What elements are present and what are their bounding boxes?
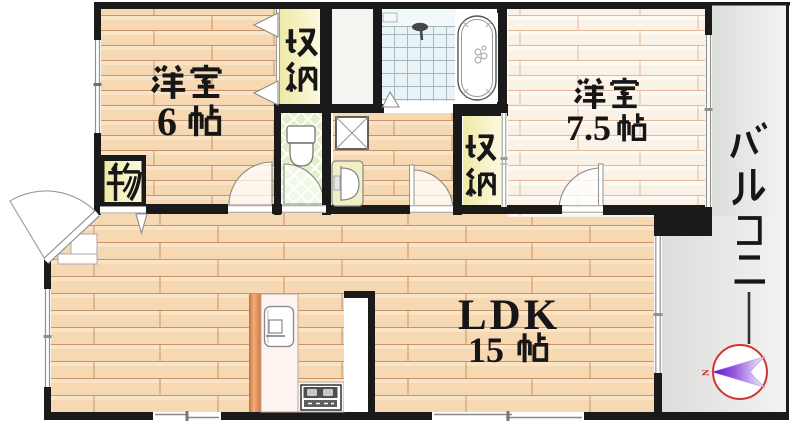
svg-text:15: 15 — [468, 330, 504, 370]
svg-text:N: N — [701, 369, 711, 376]
svg-text:6: 6 — [157, 99, 177, 144]
svg-text:7.5: 7.5 — [566, 108, 611, 148]
